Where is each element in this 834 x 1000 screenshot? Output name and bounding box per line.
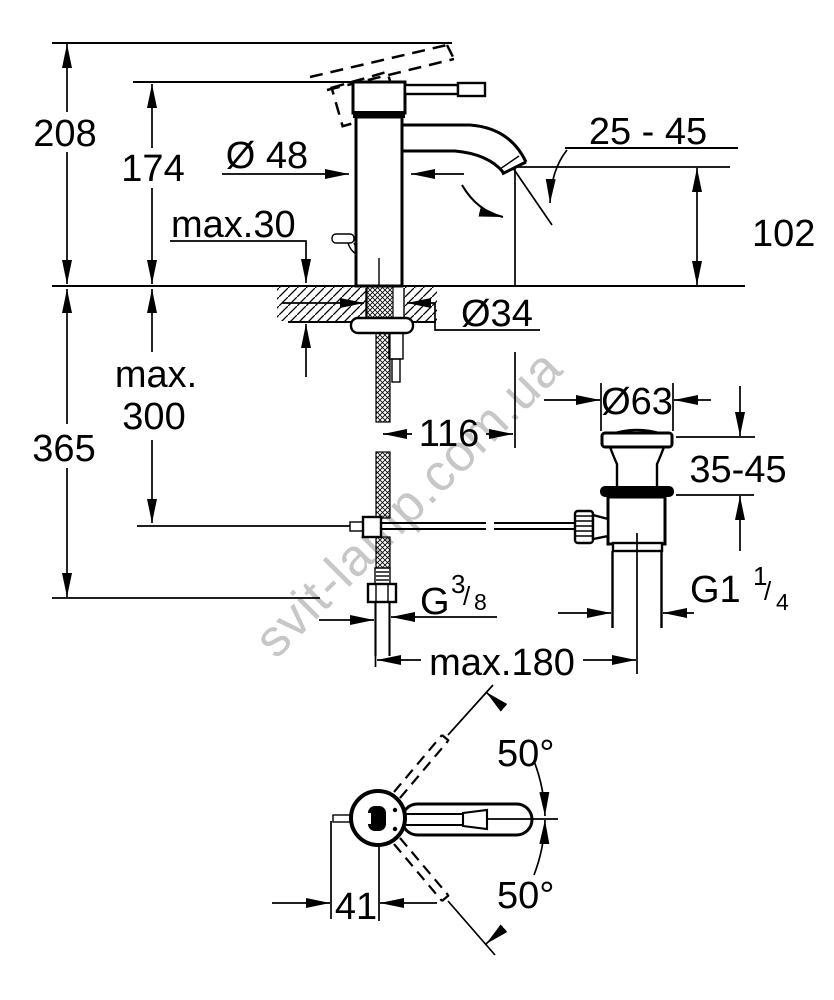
supply-thread-label: G 3 / 8 <box>420 569 487 623</box>
waste-thread-base: G1 <box>690 569 741 611</box>
mounting-stud <box>389 330 403 359</box>
mounting-washer <box>351 318 413 333</box>
supply-thread-slash: / <box>463 581 471 611</box>
flex-hose-lower <box>376 537 390 568</box>
waste-tailpipe <box>613 533 662 674</box>
cartridge-head <box>353 82 405 113</box>
dim-swivel-angle-upper-label: 50° <box>497 733 554 775</box>
dim-spout-height-label: 102 <box>752 213 815 255</box>
flex-hose-upper <box>376 333 390 422</box>
flex-hose-mid <box>376 452 390 518</box>
watermark-text: svit-lamp.com.ua <box>243 338 573 668</box>
swing-limit-line-lower <box>448 901 495 955</box>
pop-up-rod-knob <box>332 234 357 254</box>
waste-neck <box>610 447 664 488</box>
deck-hatch-left <box>277 287 366 321</box>
lever-rod <box>405 85 458 94</box>
dim-lever-height-label: 174 <box>121 148 184 190</box>
dim-spout-reach-label: 116 <box>419 413 480 455</box>
dim-center-distance-label: max.180 <box>429 642 575 684</box>
dim-hole-diameter-label: Ø34 <box>461 293 533 335</box>
faucet-spout <box>402 125 526 174</box>
dim-overall-height-label: 208 <box>33 113 96 155</box>
waste-knurled-knob <box>575 511 608 543</box>
dim-hose-depth-label-1: max. <box>115 354 197 396</box>
hose-hex-nut <box>368 584 396 602</box>
lever-tip <box>458 83 485 96</box>
supply-thread-denominator: 8 <box>474 589 487 615</box>
dim-handle-length-label: 41 <box>335 886 377 928</box>
waste-thread-slash: / <box>764 576 772 606</box>
pop-up-rod-tee <box>363 517 381 537</box>
supply-tube <box>376 602 390 667</box>
dim-deck-thickness-label: max.30 <box>171 204 296 246</box>
dim-waste-clamp-range-label: 35-45 <box>689 449 786 491</box>
waste-thread-label: G1 1 / 4 <box>690 561 789 615</box>
pop-up-waste-valve <box>544 383 755 674</box>
dim-body-diameter-label: Ø 48 <box>226 135 308 177</box>
dim-waste-cap-diameter-label: Ø63 <box>601 381 673 423</box>
dim-swivel-angle-lower-label: 50° <box>497 875 554 917</box>
waste-thread-denominator: 4 <box>776 589 789 615</box>
supply-thread-base: G <box>420 581 450 623</box>
waste-flange <box>600 486 674 497</box>
mounting-deck <box>277 287 437 322</box>
dim-hose-depth-label-2: 300 <box>122 396 185 438</box>
dim-aerator-range-label: 25 - 45 <box>589 111 707 153</box>
deck-hatch-right <box>404 287 437 321</box>
waste-cap <box>602 433 672 447</box>
technical-drawing-canvas: svit-lamp.com.ua <box>0 0 834 1000</box>
technical-drawing-page: svit-lamp.com.ua <box>0 0 834 1000</box>
dim-install-depth-label: 365 <box>32 428 95 470</box>
threaded-shank <box>367 286 393 320</box>
